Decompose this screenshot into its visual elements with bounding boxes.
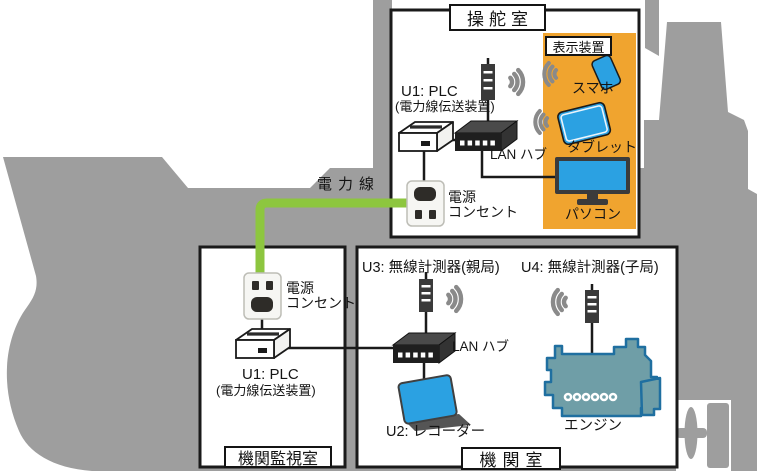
ship-mast	[645, 0, 659, 56]
engine-lan-hub-icon	[393, 333, 455, 363]
monitoring-plc-label-line1: U1: PLC	[242, 367, 299, 384]
u4-waves-icon	[553, 290, 566, 314]
tablet-waves-icon	[535, 111, 547, 133]
monitoring-outlet-label-line2: コンセント	[286, 296, 356, 312]
room-tab-engine-label: 機関室	[480, 446, 549, 471]
room-tab-bridge-label: 操舵室	[467, 5, 533, 30]
display-panel-tab: 表示装置	[545, 36, 612, 56]
u3-label: U3: 無線計測器(親局)	[362, 260, 500, 276]
monitoring-plc-modem-icon	[236, 329, 290, 358]
bridge-lan-hub-label: LAN ハブ	[490, 147, 547, 162]
bridge-power-outlet-icon	[407, 181, 444, 226]
rudder-icon	[707, 403, 729, 468]
ship-stern-foot	[731, 400, 757, 471]
diagram-canvas: 操舵室 表示装置 スマホ タブレット パソコン U1: PLC (電力線伝送装置…	[0, 0, 768, 476]
monitoring-power-outlet-icon	[244, 273, 281, 319]
display-panel-label: 表示装置	[552, 37, 604, 56]
recorder-label: U2: レコーダー	[386, 424, 485, 440]
bridge-plc-modem-icon	[399, 122, 453, 151]
ship-funnel	[659, 22, 744, 120]
bridge-outlet-label-line2: コンセント	[448, 205, 518, 221]
ship-network-diagram	[0, 0, 768, 476]
u3-waves-icon	[448, 287, 461, 311]
smartphone-waves-icon	[544, 63, 556, 85]
room-tab-engine: 機関室	[461, 447, 561, 470]
u4-label: U4: 無線計測器(子局)	[521, 260, 659, 276]
room-tab-monitoring: 機関監視室	[224, 446, 332, 468]
pc-label: パソコン	[556, 207, 630, 223]
power-line-label: 電力線	[317, 177, 380, 194]
monitoring-plc-label-line2: (電力線伝送装置)	[216, 384, 316, 399]
room-tab-bridge: 操舵室	[449, 4, 546, 31]
smartphone-label: スマホ	[572, 81, 614, 97]
bridge-plc-label-line2: (電力線伝送装置)	[395, 100, 495, 115]
engine-lan-hub-label: LAN ハブ	[452, 339, 509, 354]
tablet-label: タブレット	[567, 140, 637, 156]
engine-label: エンジン	[564, 418, 622, 434]
wireless-waves-icon	[510, 70, 523, 94]
propeller-icon	[676, 407, 707, 459]
room-tab-monitoring-label: 機関監視室	[238, 445, 318, 469]
